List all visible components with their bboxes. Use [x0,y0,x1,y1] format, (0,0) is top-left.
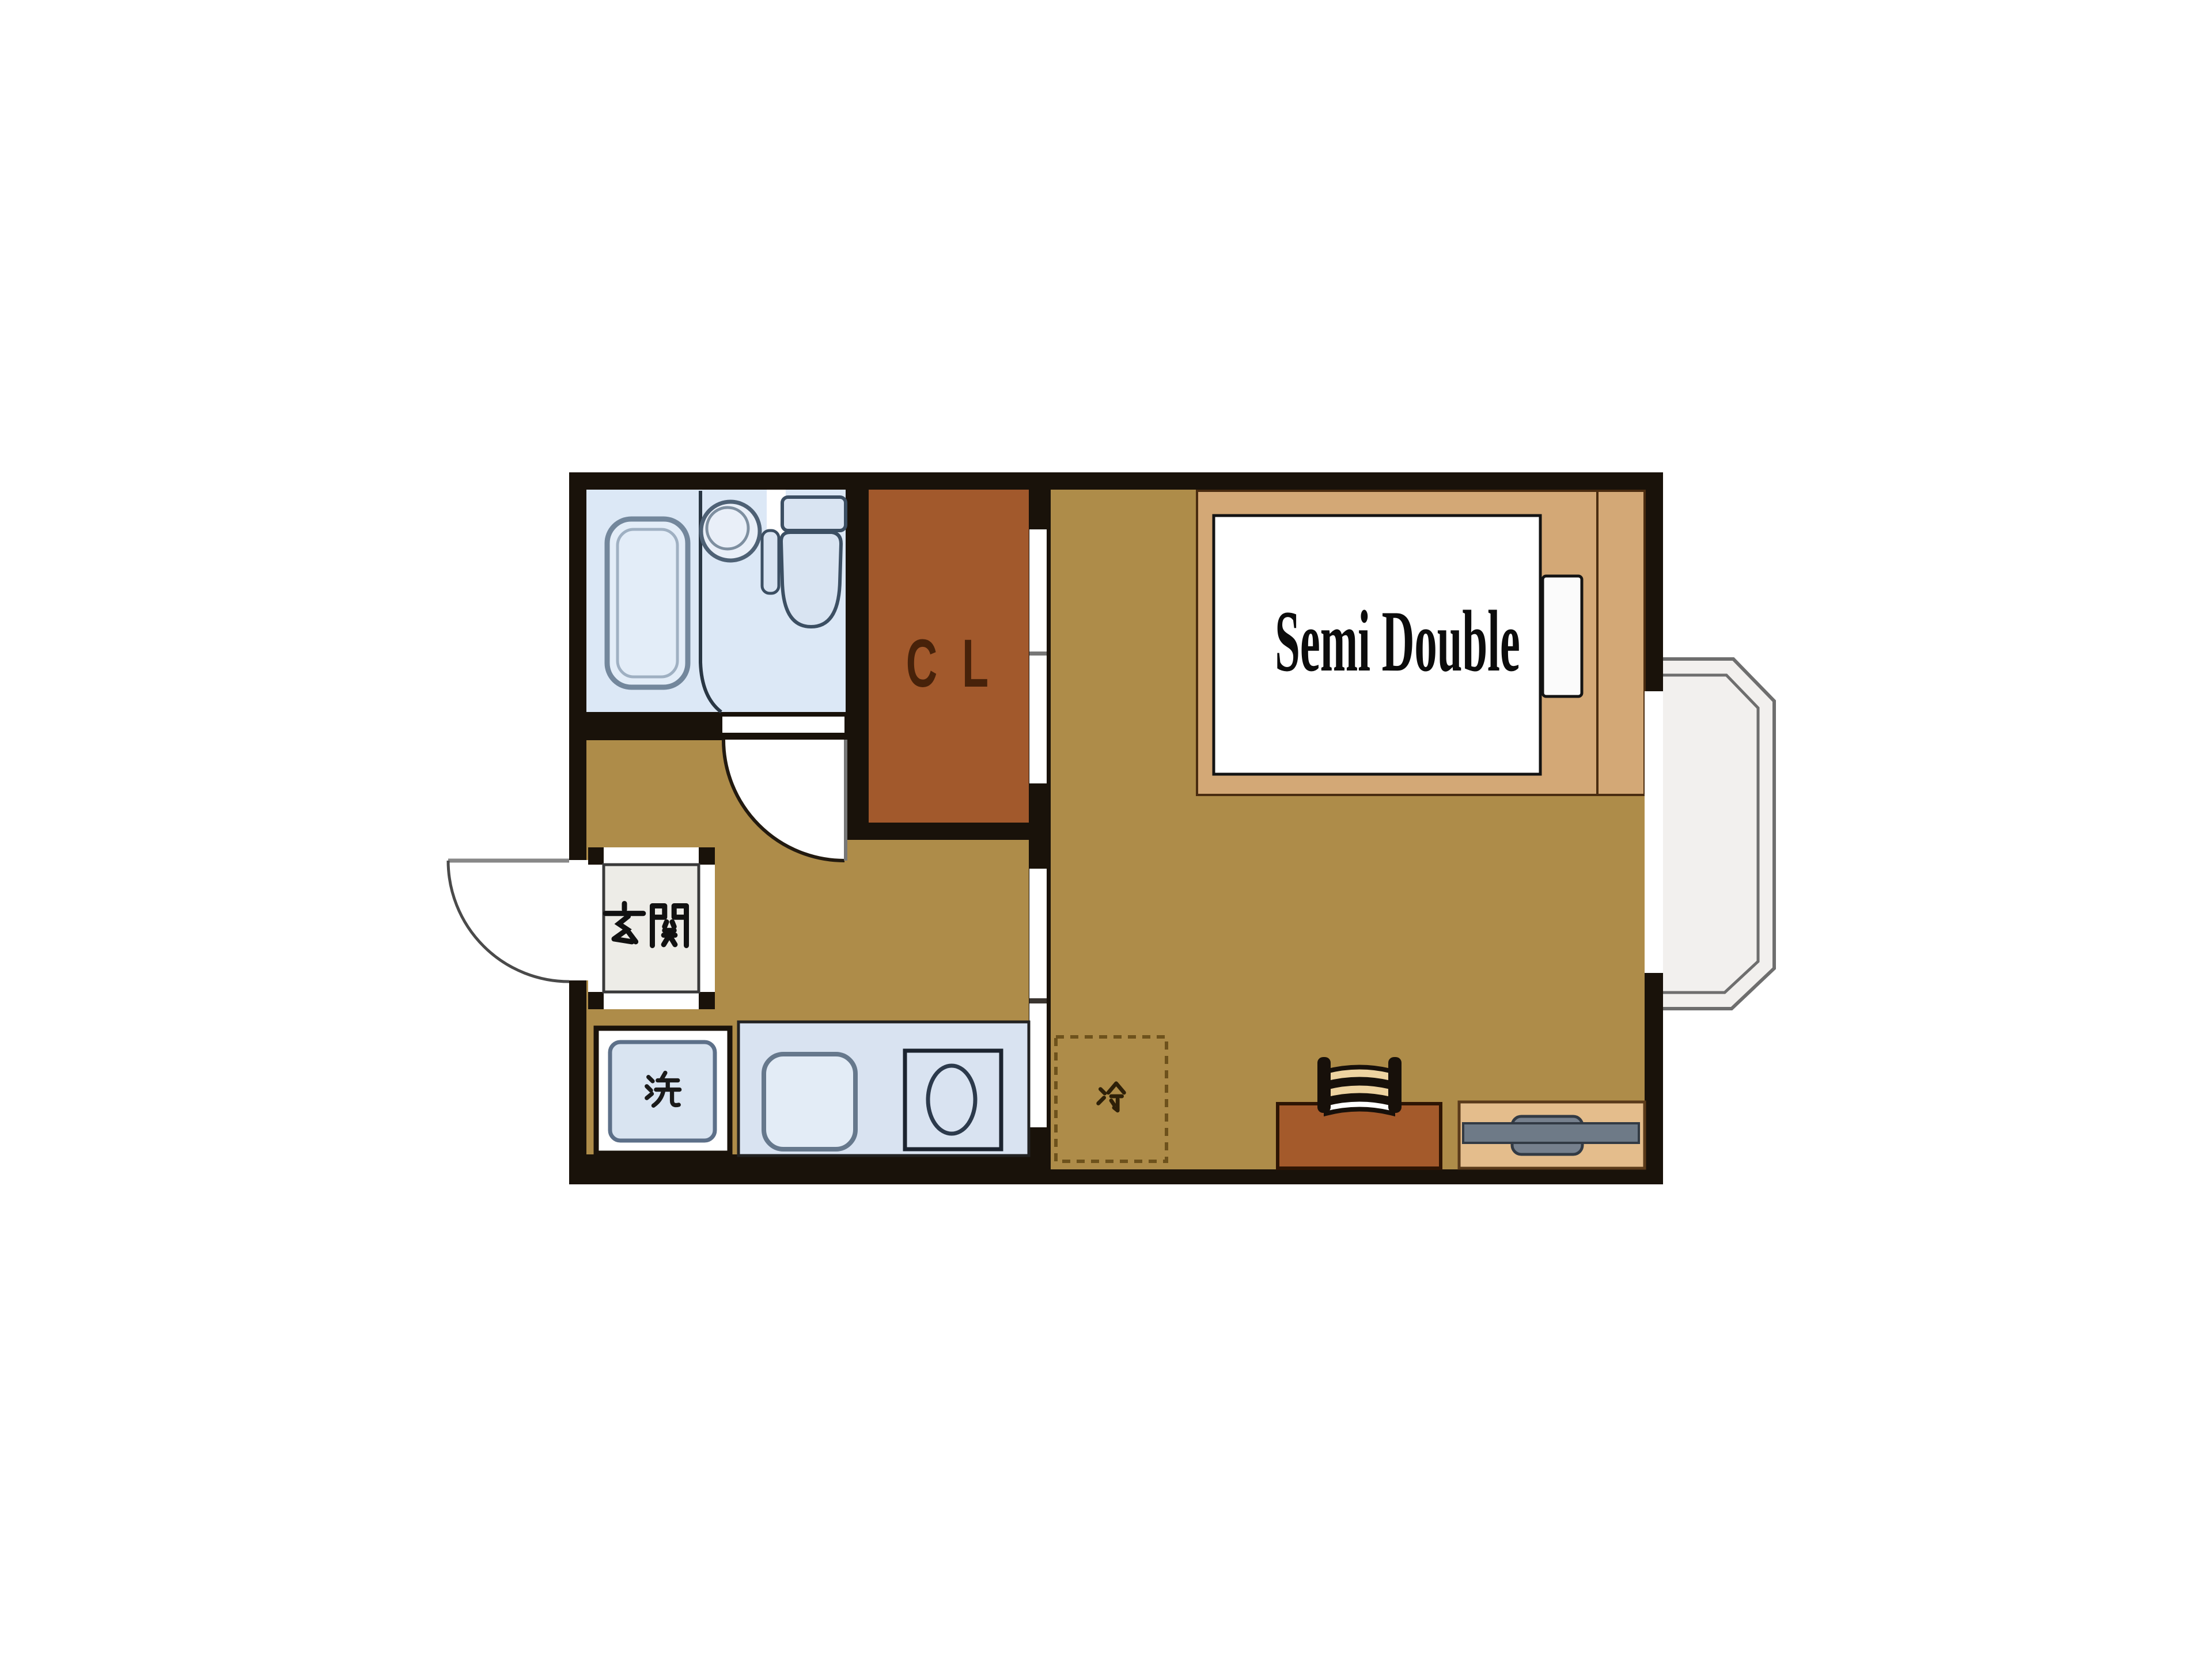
svg-text:L: L [962,625,988,701]
svg-text:C: C [906,625,938,701]
svg-text:Semi Double: Semi Double [1275,593,1520,690]
